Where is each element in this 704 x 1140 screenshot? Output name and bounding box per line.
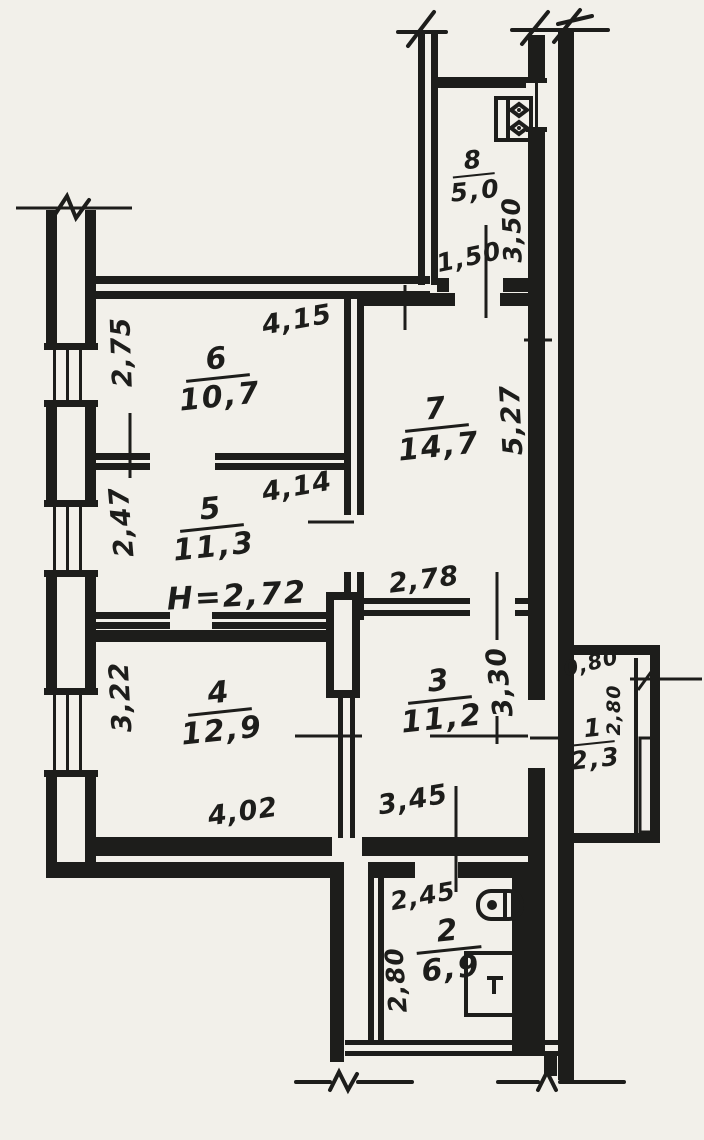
wall-segment	[96, 612, 170, 619]
room-area: 14,7	[397, 427, 482, 467]
room-area: 2,3	[569, 744, 622, 775]
room-area: 11,3	[172, 527, 257, 567]
wall-segment	[418, 30, 425, 285]
room-number: 4	[184, 674, 252, 716]
room-6-label: 6 10,7	[174, 339, 263, 416]
wall-segment	[96, 276, 430, 284]
room-8-label: 8 5,0	[446, 145, 502, 207]
wall-segment	[558, 28, 574, 1080]
wall-segment	[500, 293, 528, 306]
wall-segment	[364, 610, 470, 616]
wall-segment	[96, 463, 150, 470]
wall-segment	[574, 833, 660, 843]
room-area: 12,9	[180, 711, 265, 751]
left-exterior-wall	[44, 210, 98, 878]
wall-segment	[362, 837, 528, 856]
wall-segment	[458, 862, 530, 878]
wall-segment	[46, 862, 332, 878]
break-mark	[296, 1072, 412, 1090]
window-icon	[44, 500, 98, 577]
wall-segment	[96, 453, 150, 460]
dim-room6-height: 2,75	[105, 316, 138, 388]
wall-segment	[515, 598, 528, 604]
wall-room5-hall	[90, 612, 345, 642]
wall-room7-top	[364, 293, 528, 306]
stove-icon	[496, 98, 531, 140]
room-area: 5,0	[449, 176, 502, 207]
wall-segment	[368, 862, 415, 878]
room-7-label: 7 14,7	[393, 389, 482, 466]
wall-segment	[634, 658, 638, 833]
wall-segment	[368, 877, 374, 1040]
wall-segment	[350, 698, 355, 838]
wall-segment	[437, 77, 530, 88]
room-5-label: 5 11,3	[168, 489, 257, 566]
room-number: 3	[404, 662, 472, 704]
wall-segment	[437, 278, 449, 292]
wall-segment	[215, 453, 345, 460]
right-exterior-wall	[526, 28, 574, 1080]
break-mark	[54, 196, 89, 218]
window-icon	[44, 688, 98, 777]
wall-segment	[330, 862, 344, 1062]
room-number: 8	[450, 145, 494, 178]
wall-room7-room3	[364, 598, 528, 616]
room-number: 7	[401, 390, 469, 432]
dim-room5-height: 2,47	[103, 485, 140, 558]
wall-segment	[528, 768, 545, 1055]
ceiling-height-note: H=2,72	[166, 574, 308, 617]
wall-segment	[503, 278, 530, 292]
wall-segment	[90, 630, 332, 642]
dim-room4-height: 3,22	[104, 661, 139, 733]
room-3-label: 3 11,2	[396, 661, 485, 738]
partition-wall-center	[344, 292, 364, 620]
hall-pillar	[326, 592, 360, 698]
dim-room2-height: 2,80	[379, 946, 413, 1014]
wall-segment	[344, 292, 351, 515]
wall-room6-room5	[96, 453, 345, 470]
dim-room7-height: 5,27	[495, 384, 530, 456]
room-number: 6	[182, 340, 250, 382]
room-number: 2	[413, 912, 481, 954]
room-4-label: 4 12,9	[176, 673, 265, 750]
room-number: 5	[176, 490, 244, 532]
wall-segment	[338, 698, 343, 838]
dim-room8-height: 3,50	[496, 197, 527, 264]
wall-segment	[431, 30, 438, 285]
room-area: 11,2	[400, 699, 485, 739]
wall-segment	[345, 1051, 560, 1056]
floor-plan-drawing	[0, 0, 704, 1140]
wall-segment	[364, 598, 470, 604]
room-2-label: 2 6,9	[413, 912, 485, 987]
wall-segment	[345, 1040, 560, 1045]
window-icon	[44, 343, 98, 407]
room-area: 10,7	[178, 377, 263, 417]
floor-plan: 6 10,7 4,15 2,75 5 11,3 4,14 2,47 H=2,72…	[0, 0, 704, 1140]
wall-hall-room3	[338, 698, 355, 838]
wall-segment	[357, 292, 364, 515]
wall-segment	[515, 610, 528, 616]
wall-segment	[212, 622, 345, 629]
room-area: 6,9	[420, 950, 482, 988]
wall-segment	[90, 837, 332, 856]
dim-room1-height: 2,80	[603, 685, 625, 736]
wall-segment	[364, 293, 455, 306]
wall-segment	[96, 622, 170, 629]
